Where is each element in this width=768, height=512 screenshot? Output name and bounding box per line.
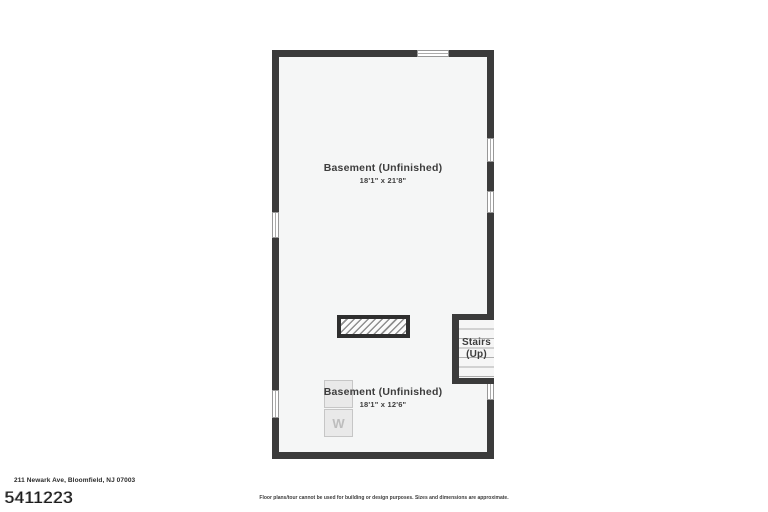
window-left-upper	[272, 212, 279, 238]
window-right-middle	[487, 191, 494, 213]
chimney-hatched-block	[337, 315, 410, 338]
disclaimer-text: Floor plans/tour cannot be used for buil…	[0, 495, 768, 501]
room-dimensions: 18'1" x 21'8"	[279, 176, 487, 185]
staircase: Stairs (Up)	[452, 314, 494, 384]
room-label-basement-lower: Basement (Unfinished) 18'1" x 12'6"	[279, 386, 487, 409]
room-name: Basement (Unfinished)	[279, 162, 487, 174]
washer-box-label: W	[332, 416, 344, 431]
room-label-basement-upper: Basement (Unfinished) 18'1" x 21'8"	[279, 162, 487, 185]
floorplan-page: Stairs (Up) W Basement (Unfinished) 18'1…	[0, 0, 768, 512]
stairs-label-line1: Stairs	[462, 337, 491, 349]
window-top	[417, 50, 449, 57]
room-name: Basement (Unfinished)	[279, 386, 487, 398]
window-left-lower	[272, 390, 279, 418]
property-address: 211 Newark Ave, Bloomfield, NJ 07003	[14, 477, 135, 484]
stairs-label-line2: (Up)	[462, 349, 491, 361]
washer-box: W	[324, 409, 353, 437]
floorplan-canvas: Stairs (Up) W Basement (Unfinished) 18'1…	[272, 50, 494, 459]
stairs-label: Stairs (Up)	[462, 337, 491, 361]
window-right-upper	[487, 138, 494, 162]
room-dimensions: 18'1" x 12'6"	[279, 400, 487, 409]
